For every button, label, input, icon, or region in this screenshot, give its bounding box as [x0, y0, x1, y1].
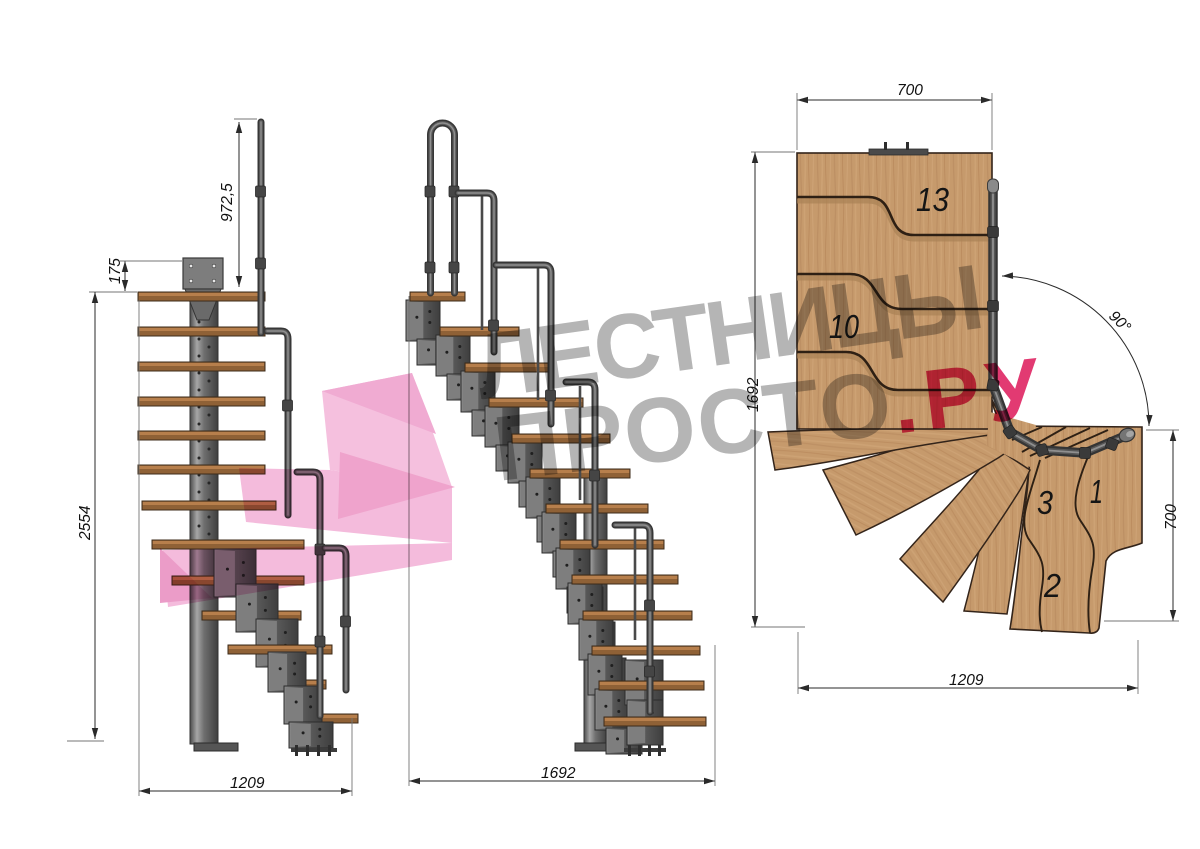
svg-text:1209: 1209 — [230, 775, 265, 792]
svg-text:1692: 1692 — [541, 765, 576, 782]
svg-text:700: 700 — [1163, 504, 1180, 530]
svg-text:2: 2 — [1043, 567, 1061, 604]
svg-text:700: 700 — [897, 82, 923, 99]
svg-text:1209: 1209 — [949, 672, 984, 689]
svg-text:175: 175 — [107, 258, 124, 284]
svg-text:972,5: 972,5 — [219, 183, 236, 222]
svg-text:2554: 2554 — [77, 505, 94, 541]
svg-text:1: 1 — [1090, 473, 1103, 510]
svg-text:13: 13 — [916, 181, 950, 218]
svg-text:3: 3 — [1037, 484, 1054, 521]
